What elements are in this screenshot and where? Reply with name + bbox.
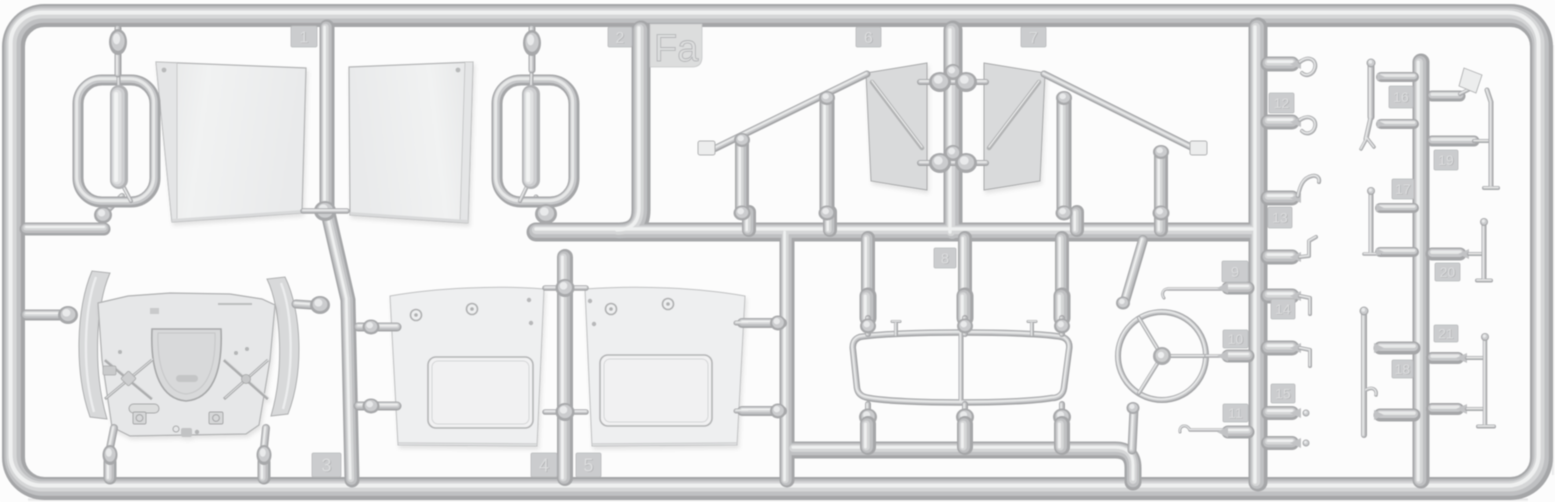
svg-text:12: 12 — [1274, 95, 1290, 111]
svg-text:9: 9 — [1231, 264, 1239, 281]
svg-text:14: 14 — [1275, 301, 1291, 317]
svg-text:6: 6 — [864, 30, 873, 47]
svg-text:21: 21 — [1438, 326, 1454, 342]
svg-text:5: 5 — [583, 455, 593, 475]
svg-text:7: 7 — [1029, 30, 1038, 47]
svg-text:16: 16 — [1393, 89, 1409, 105]
svg-text:17: 17 — [1395, 181, 1411, 197]
svg-text:13: 13 — [1272, 210, 1288, 226]
svg-text:10: 10 — [1228, 331, 1244, 347]
svg-text:Fa: Fa — [654, 28, 699, 70]
svg-text:11: 11 — [1228, 405, 1243, 421]
svg-text:20: 20 — [1440, 264, 1456, 280]
svg-text:19: 19 — [1438, 152, 1454, 168]
svg-text:1: 1 — [300, 29, 309, 46]
svg-text:3: 3 — [321, 455, 331, 475]
svg-text:2: 2 — [616, 30, 625, 47]
svg-text:4: 4 — [539, 455, 549, 475]
svg-text:18: 18 — [1395, 361, 1411, 377]
svg-text:15: 15 — [1275, 386, 1291, 402]
svg-text:8: 8 — [941, 250, 949, 267]
